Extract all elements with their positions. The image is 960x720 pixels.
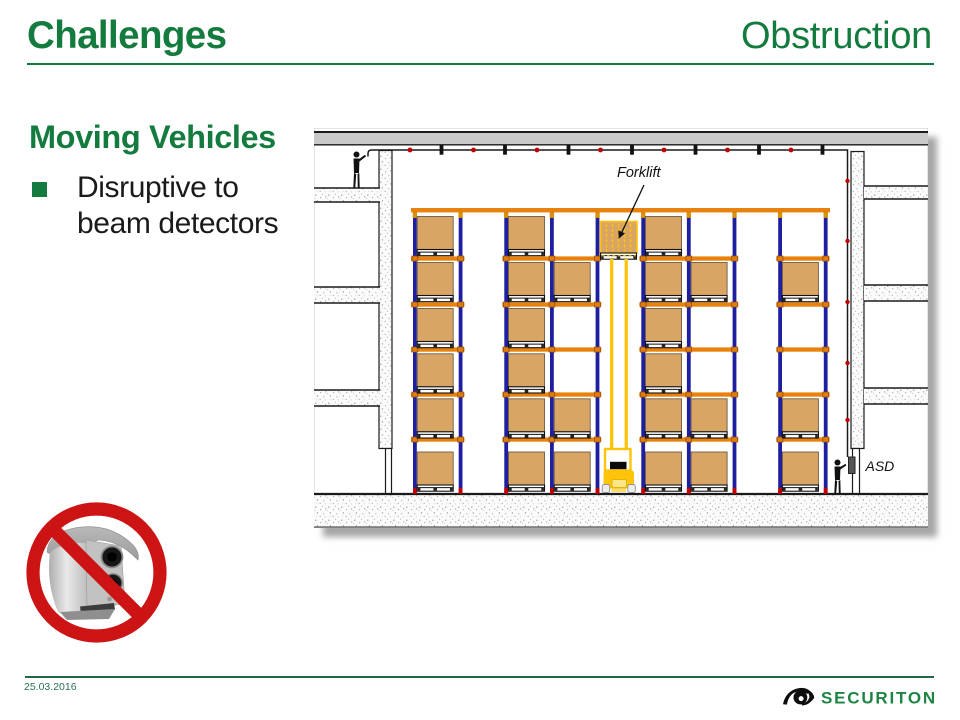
svg-text:SECURITON: SECURITON [821, 689, 937, 708]
svg-text:ASD: ASD [865, 458, 895, 474]
svg-text:Forklift: Forklift [617, 165, 661, 181]
